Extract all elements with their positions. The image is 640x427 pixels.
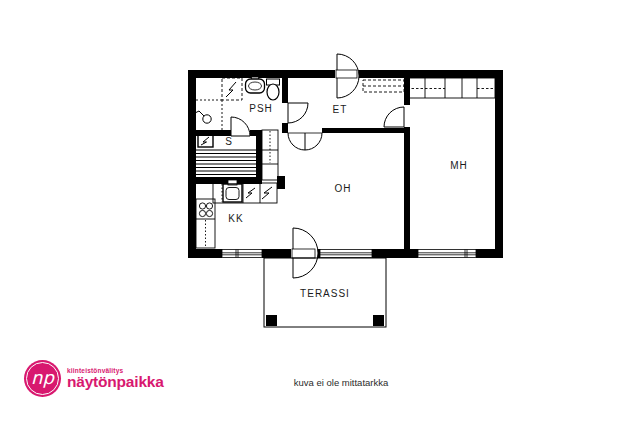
sauna-door: [231, 117, 250, 136]
sauna-benches: [196, 150, 256, 175]
livingroom-door: [288, 133, 322, 150]
brand-logo-icon-inner: np: [26, 362, 59, 395]
room-label-et: ET: [333, 104, 348, 115]
terrace-post: [373, 315, 384, 326]
stove-burners-icon: [199, 203, 212, 217]
livingroom-window: [320, 250, 372, 258]
room-label-sauna: S: [225, 136, 233, 147]
wardrobe-row: [407, 78, 495, 98]
terrace-door: [292, 228, 318, 278]
brand-text: kiinteistönvälitys näytönpaikka: [67, 367, 164, 390]
terrace-post: [266, 315, 277, 326]
brand-monogram: np: [31, 369, 54, 387]
room-label-oh: OH: [335, 183, 352, 194]
brand-logo: np kiinteistönvälitys näytönpaikka: [24, 360, 164, 397]
kitchen-sink-icon: [223, 180, 242, 202]
toilet-icon: [267, 79, 280, 100]
scale-disclaimer: kuva ei ole mittatarkka: [294, 377, 389, 388]
room-label-kk: KK: [228, 213, 243, 224]
washbasin-icon: [246, 77, 265, 93]
appliance-reservation-icon: [246, 187, 272, 199]
room-label-terassi: TERASSI: [300, 288, 350, 299]
brand-logo-icon: np: [24, 360, 61, 397]
kitchen-window: [222, 250, 262, 258]
bedroom-window: [418, 250, 476, 258]
bedroom-door: [384, 107, 404, 127]
bathroom-door: [288, 103, 308, 123]
room-label-mh: MH: [450, 160, 468, 171]
washing-machine-icon: [222, 78, 242, 100]
entrance-door: [336, 54, 359, 98]
floorplan-page: PSH S ET OH MH KK TERASSI kuva ei ole mi…: [0, 0, 640, 427]
brand-name: näytönpaikka: [67, 374, 164, 390]
shower-icon: [195, 100, 222, 130]
closet-column: [262, 130, 278, 180]
coat-rack-icon: [363, 80, 404, 92]
room-label-psh: PSH: [249, 103, 273, 114]
windows: [222, 250, 476, 258]
